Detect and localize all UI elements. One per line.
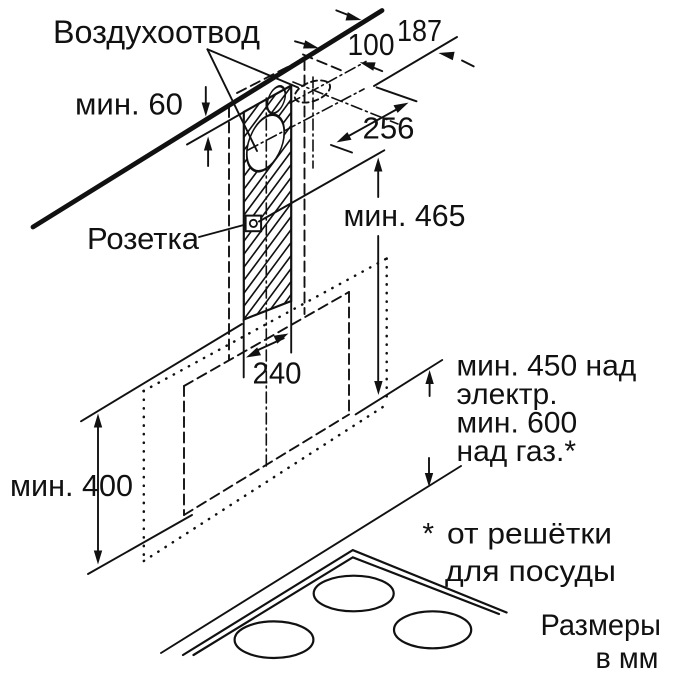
svg-text:мин. 60: мин. 60 (75, 88, 183, 122)
svg-text:240: 240 (253, 357, 302, 391)
svg-text:от решётки: от решётки (447, 518, 612, 551)
svg-text:Розетка: Розетка (87, 222, 199, 256)
svg-text:100: 100 (348, 28, 395, 62)
svg-text:187: 187 (397, 14, 442, 48)
svg-text:мин. 465: мин. 465 (344, 199, 466, 233)
svg-text:мин. 400: мин. 400 (10, 469, 133, 503)
svg-text:над газ.*: над газ.* (457, 435, 577, 468)
svg-text:Воздухоотвод: Воздухоотвод (53, 14, 260, 50)
svg-text:в мм: в мм (596, 642, 659, 675)
svg-text:*: * (422, 518, 434, 551)
svg-text:Размеры: Размеры (541, 609, 662, 642)
svg-text:256: 256 (363, 112, 415, 146)
svg-text:для посуды: для посуды (445, 555, 616, 588)
